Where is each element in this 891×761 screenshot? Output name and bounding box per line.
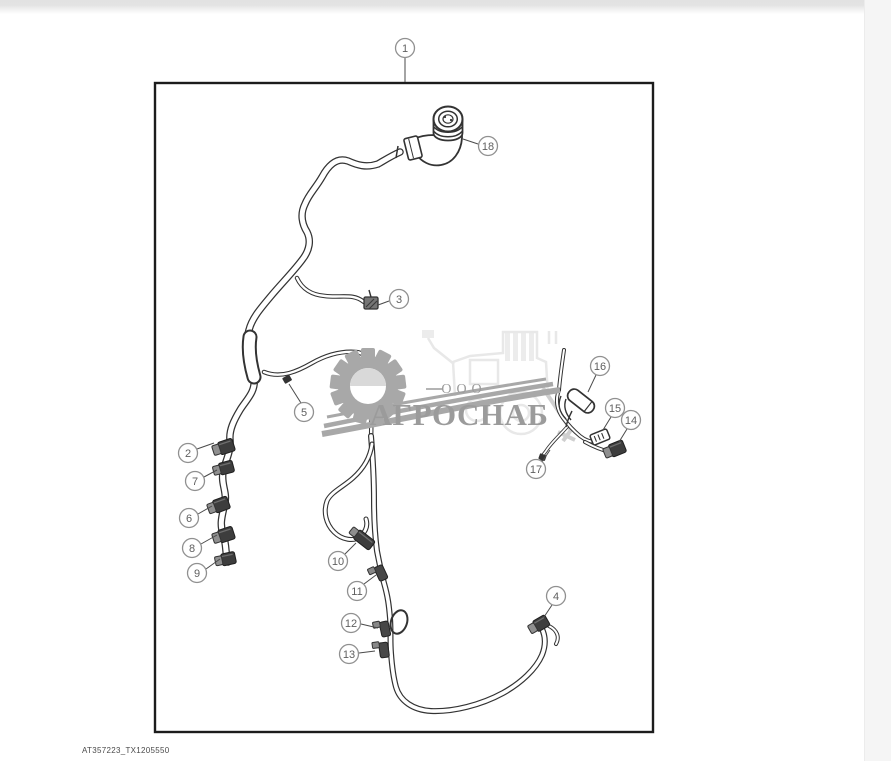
callout-number: 2 (185, 448, 191, 460)
callout-number: 15 (609, 403, 621, 415)
callout-leader (345, 543, 356, 554)
wire-segment (325, 444, 372, 539)
callout-number: 11 (351, 586, 362, 598)
callout-13: 13 (340, 645, 376, 664)
callout-number: 5 (301, 407, 307, 419)
callout-leader (197, 443, 214, 449)
connector-15 (590, 429, 611, 446)
callout-10: 10 (329, 543, 357, 571)
callout-leader (364, 575, 376, 584)
callout-leader (619, 429, 627, 442)
watermark-company-name: АГРОСНАБ (370, 397, 549, 432)
wire-segment (249, 337, 254, 377)
callout-leader (588, 375, 596, 392)
watermark-company-prefix: ООО (441, 382, 486, 397)
connector-6 (206, 496, 231, 516)
callout-7: 7 (186, 470, 218, 491)
callout-number: 18 (482, 141, 494, 153)
callout-number: 7 (192, 476, 198, 488)
callout-17: 17 (527, 450, 551, 479)
barrel-connector-18 (396, 107, 463, 166)
callout-9: 9 (188, 559, 221, 583)
cylinder-16 (565, 387, 597, 416)
clamp-13 (372, 640, 390, 658)
connector-4 (527, 615, 551, 636)
callout-leader (378, 301, 389, 305)
callout-leader (603, 417, 611, 430)
parts-diagram-svg: ООО АГРОСНАБ 123456789101112131415161718 (0, 0, 891, 761)
callout-18: 18 (463, 137, 498, 156)
callout-number: 10 (332, 556, 344, 568)
connector-3 (364, 290, 378, 309)
wire-segment (371, 436, 545, 711)
callout-number: 13 (343, 649, 355, 661)
callout-5: 5 (289, 384, 314, 422)
callout-leader (359, 651, 375, 653)
figure-code: AT357223_TX1205550 (82, 746, 170, 755)
callout-11: 11 (348, 575, 377, 601)
callout-number: 9 (194, 568, 200, 580)
callout-14: 14 (619, 411, 641, 443)
callout-4: 4 (544, 587, 566, 618)
callout-2: 2 (179, 443, 215, 463)
page-top-shadow (0, 0, 891, 14)
callout-16: 16 (588, 357, 610, 393)
callout-leader (463, 139, 478, 144)
wire-segment (371, 436, 545, 711)
callout-number: 16 (594, 361, 606, 373)
callout-3: 3 (378, 290, 409, 309)
page-right-gutter (864, 0, 891, 761)
callout-number: 8 (189, 543, 195, 555)
connector-8 (211, 526, 235, 545)
callout-number: 17 (530, 464, 542, 476)
callout-8: 8 (183, 535, 218, 558)
callout-6: 6 (180, 506, 213, 528)
callout-number: 3 (396, 294, 402, 306)
clamp-12 (372, 619, 391, 638)
callout-number: 4 (553, 591, 559, 603)
callout-number: 1 (402, 43, 408, 55)
callout-1: 1 (396, 39, 415, 83)
callout-leader (544, 605, 552, 617)
callout-15: 15 (603, 399, 625, 431)
callout-leader (289, 384, 301, 403)
callout-number: 12 (345, 618, 357, 630)
callout-number: 14 (625, 415, 637, 427)
connector-7 (212, 460, 235, 477)
connector-9 (214, 551, 237, 567)
parts-diagram-page: ООО АГРОСНАБ 123456789101112131415161718… (0, 0, 891, 761)
callout-number: 6 (186, 513, 192, 525)
harness-connectors (206, 438, 627, 659)
connector-14 (602, 440, 627, 460)
